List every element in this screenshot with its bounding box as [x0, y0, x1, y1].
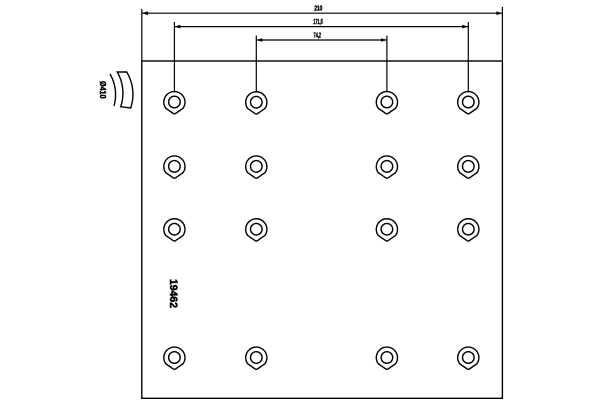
svg-text:19462: 19462	[167, 279, 179, 308]
svg-text:210: 210	[314, 4, 322, 13]
svg-text:Ø410: Ø410	[98, 81, 107, 99]
svg-text:171,5: 171,5	[313, 17, 323, 26]
svg-text:74,2: 74,2	[314, 31, 322, 40]
